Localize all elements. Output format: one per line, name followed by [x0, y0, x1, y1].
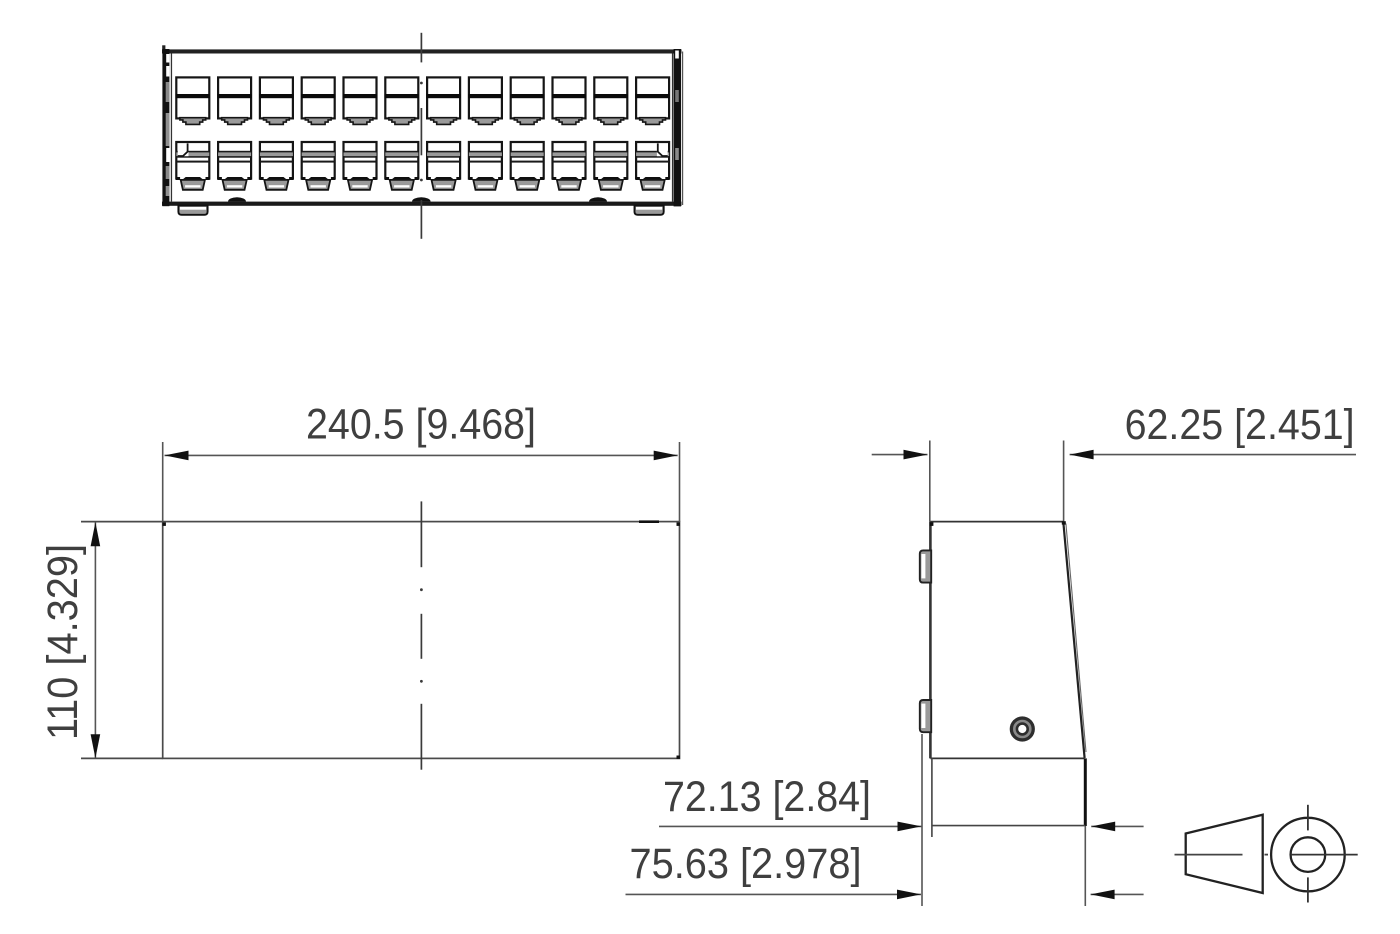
svg-text:240.5 [9.468]: 240.5 [9.468] — [306, 401, 536, 449]
svg-text:75.63 [2.978]: 75.63 [2.978] — [630, 840, 862, 888]
svg-text:62.25 [2.451]: 62.25 [2.451] — [1125, 401, 1355, 449]
svg-text:110 [4.329]: 110 [4.329] — [39, 544, 87, 740]
svg-text:72.13 [2.84]: 72.13 [2.84] — [663, 773, 871, 821]
